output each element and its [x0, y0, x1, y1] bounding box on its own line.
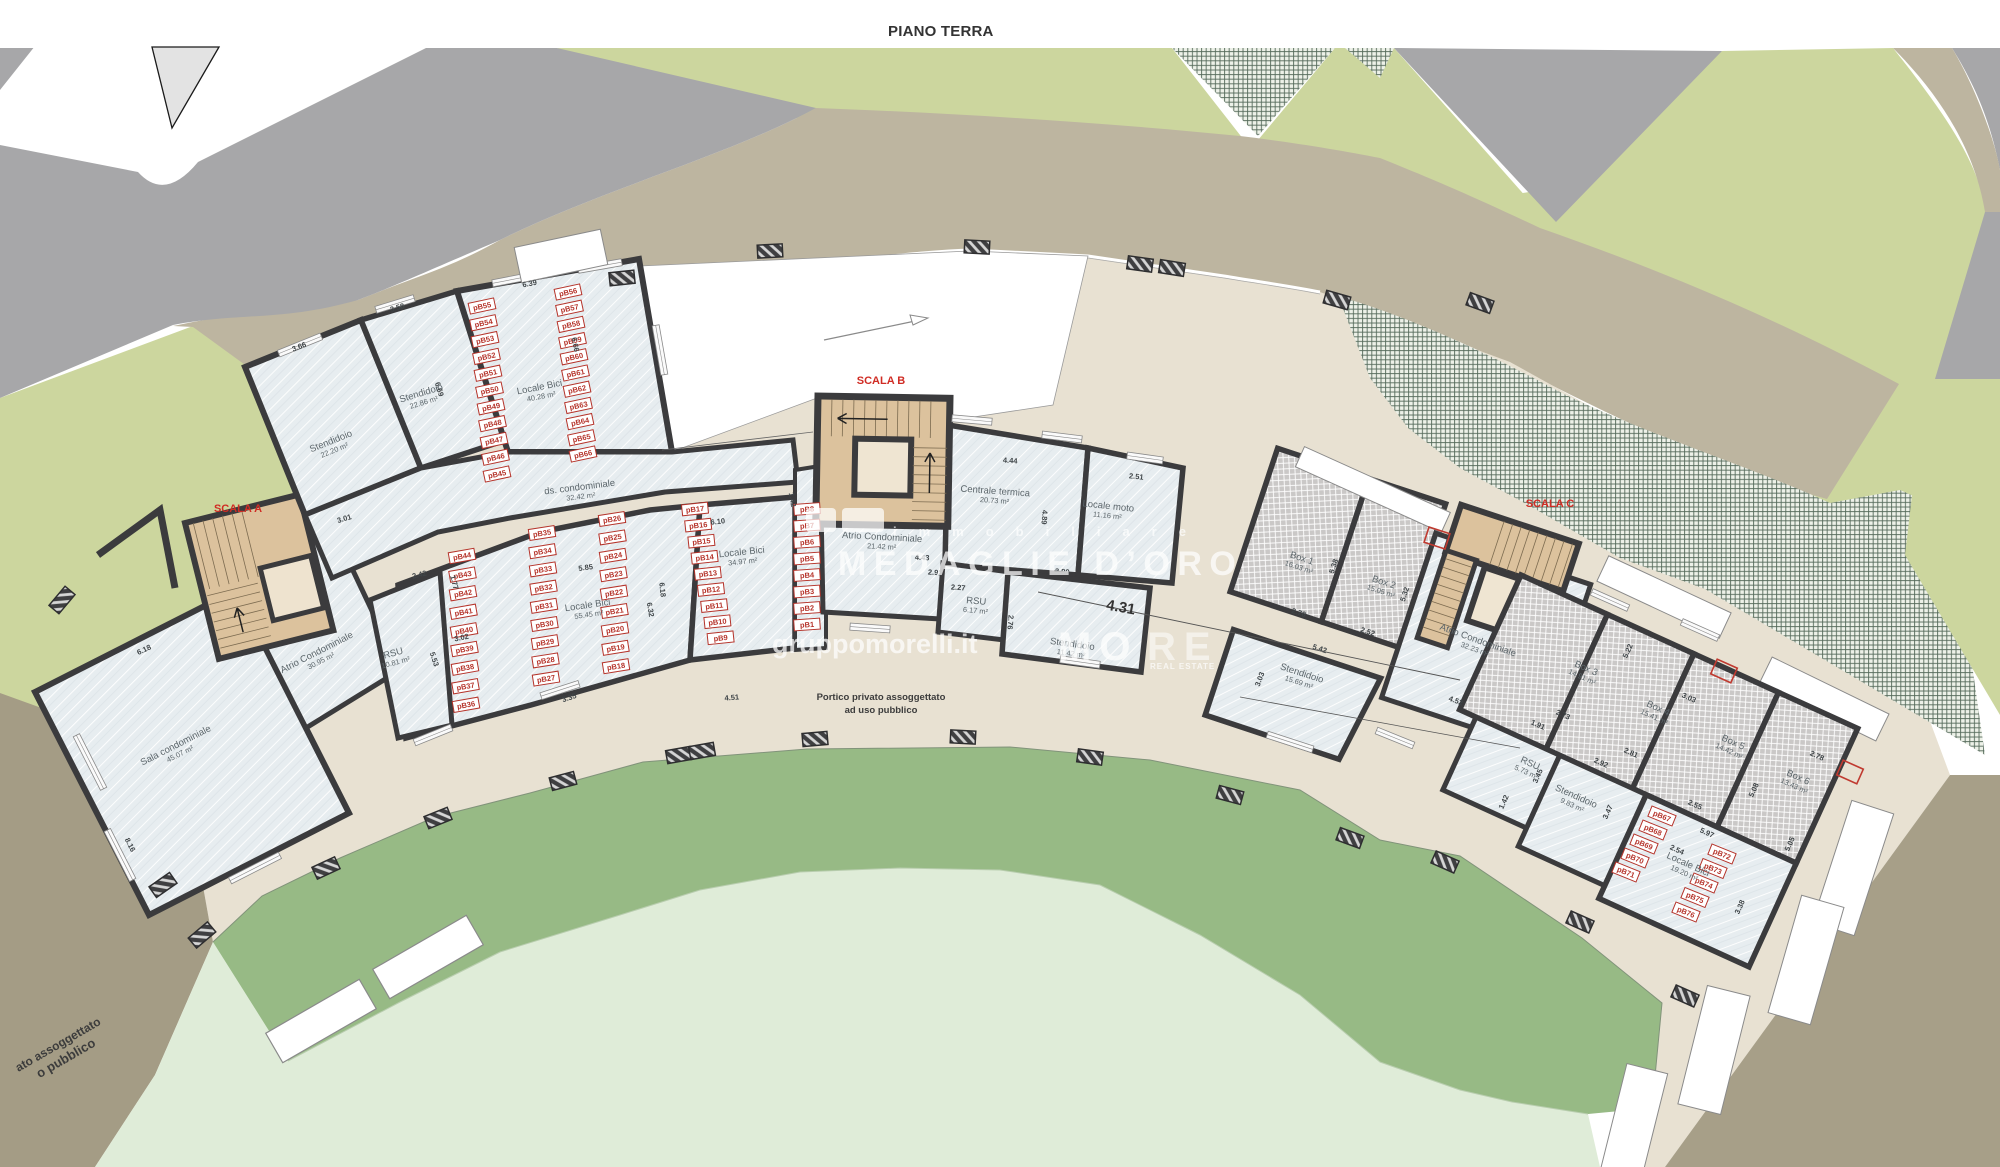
svg-text:MO: MO: [1058, 625, 1138, 669]
svg-text:pB3: pB3: [800, 587, 815, 597]
svg-text:pB16: pB16: [689, 520, 708, 531]
svg-text:2.51: 2.51: [1129, 471, 1144, 481]
svg-text:4.51: 4.51: [724, 692, 739, 702]
svg-text:Portico privato assoggettato: Portico privato assoggettato: [817, 692, 946, 703]
svg-text:pB11: pB11: [705, 600, 724, 611]
svg-text:pB17: pB17: [685, 504, 704, 515]
svg-text:2.27: 2.27: [951, 583, 966, 593]
svg-text:gruppomorelli.it: gruppomorelli.it: [772, 629, 978, 659]
svg-text:pB9: pB9: [713, 633, 728, 643]
svg-text:pB12: pB12: [701, 584, 720, 595]
svg-text:ad uso pubblico: ad uso pubblico: [845, 705, 918, 716]
svg-text:pB6: pB6: [800, 537, 815, 547]
svg-text:pB13: pB13: [698, 568, 717, 579]
svg-text:MEDAGLIE D’ORO: MEDAGLIE D’ORO: [838, 545, 1243, 583]
svg-text:SCALA C: SCALA C: [1526, 498, 1575, 510]
svg-text:pB5: pB5: [800, 554, 815, 564]
svg-text:REAL ESTATE: REAL ESTATE: [1150, 662, 1215, 671]
svg-text:SCALA A: SCALA A: [214, 503, 262, 515]
svg-text:6.10: 6.10: [710, 516, 725, 526]
svg-text:6.18: 6.18: [657, 582, 667, 597]
svg-text:pB4: pB4: [800, 570, 816, 580]
svg-text:PIANO TERRA: PIANO TERRA: [888, 23, 994, 40]
svg-text:2.76: 2.76: [1005, 615, 1015, 630]
svg-text:4.89: 4.89: [1039, 510, 1049, 525]
svg-text:pB15: pB15: [692, 536, 711, 547]
svg-text:SCALA B: SCALA B: [857, 375, 906, 387]
svg-text:4.44: 4.44: [1003, 456, 1019, 466]
svg-text:pB2: pB2: [800, 603, 815, 613]
svg-text:immobiliare: immobiliare: [893, 524, 1208, 539]
svg-text:pB10: pB10: [708, 617, 727, 628]
